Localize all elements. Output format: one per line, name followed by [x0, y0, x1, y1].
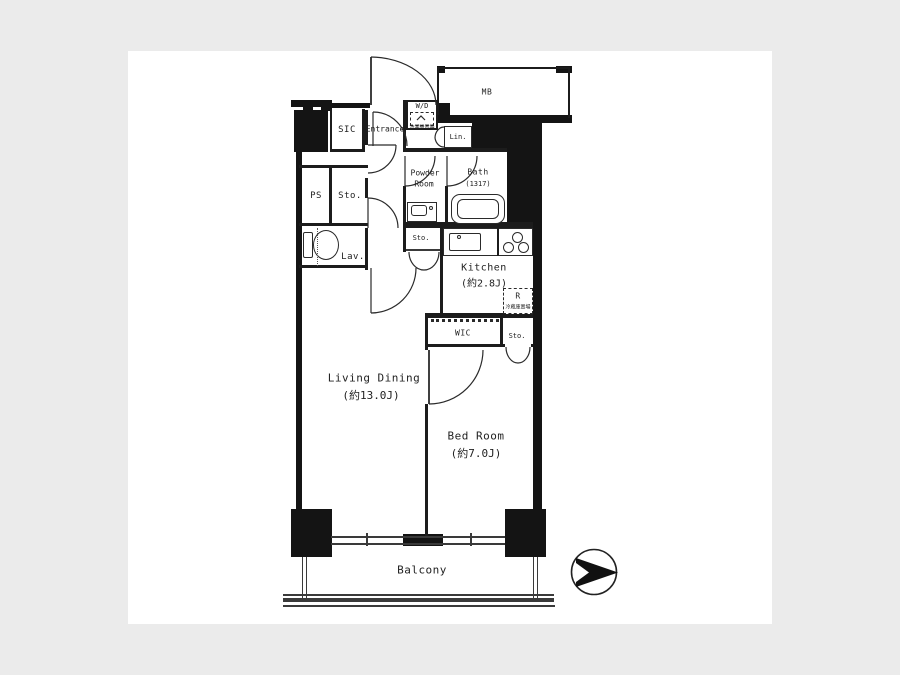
stove-burner-icon — [518, 242, 529, 253]
label-powder-room: Powder — [411, 169, 440, 178]
wall-ps-sto-divider — [329, 168, 332, 226]
column-bottom-left — [291, 509, 332, 557]
label-living-dining: Living Dining — [328, 372, 421, 385]
label-living-dining-size: (約13.0J) — [342, 387, 399, 403]
toilet-tank — [303, 232, 313, 258]
balcony-railing — [283, 594, 554, 596]
wall-right — [533, 123, 542, 509]
wall-wic-right — [500, 318, 503, 347]
label-washer-dryer-note: 洗濯機置場 — [409, 124, 434, 131]
label-storage: Sto. — [338, 191, 362, 201]
label-entrance: Entrance — [366, 125, 405, 134]
label-bed-room: Bed Room — [448, 430, 505, 443]
label-bath-size: (1317) — [465, 180, 490, 188]
label-mb: MB — [482, 88, 493, 97]
wall-mb-right — [568, 67, 570, 118]
window-tick — [470, 533, 472, 546]
label-refrigerator: R — [515, 292, 520, 301]
wall-segment — [531, 344, 533, 347]
wall-segment — [325, 103, 370, 108]
wall-lav-bottom — [299, 265, 368, 268]
label-hall-storage: Sto. — [413, 234, 430, 242]
wall-hall-left — [365, 178, 368, 198]
wall-segment — [299, 165, 368, 168]
label-linen: Lin. — [450, 133, 467, 141]
toilet-centerline — [317, 228, 318, 266]
balcony-railing — [283, 598, 554, 602]
balcony-railing — [283, 605, 555, 607]
label-lavatory: Lav. — [341, 252, 365, 262]
wall-mb-top — [437, 67, 570, 69]
column — [294, 110, 328, 152]
column-bottom-right — [505, 509, 546, 557]
wall-sic-bottom — [330, 149, 365, 152]
window-line — [331, 536, 505, 538]
wall-mass — [472, 123, 533, 151]
storage-front-line — [406, 249, 440, 251]
label-refrigerator-note: 冷蔵庫置場 — [505, 304, 530, 311]
window-tick — [366, 533, 368, 546]
window-line — [331, 543, 505, 545]
wall-ld-bed-divider — [425, 404, 428, 536]
wall-segment — [299, 223, 368, 226]
wall-mb-bottom — [441, 115, 572, 123]
faucet-dot — [429, 206, 433, 210]
label-ps: PS — [310, 191, 322, 201]
bathtub-inner — [457, 199, 499, 219]
wall-bath-left — [445, 186, 448, 224]
label-balcony: Balcony — [397, 564, 447, 577]
wall-mass — [507, 151, 533, 226]
counter-divider — [497, 228, 499, 256]
faucet-dot — [457, 235, 461, 239]
label-bed-room-size: (約7.0J) — [451, 445, 502, 461]
wall-segment — [438, 103, 450, 123]
label-wic: WIC — [455, 329, 471, 338]
stove-burner-icon — [503, 242, 514, 253]
label-kitchen-size: (約2.8J) — [461, 275, 507, 290]
wall-segment — [291, 100, 325, 107]
wall-sic-left — [330, 109, 332, 152]
wall-hall-left — [365, 228, 368, 270]
kitchen-sink-icon — [449, 233, 481, 251]
label-powder-room: Room — [414, 180, 433, 189]
label-sic: SIC — [338, 125, 356, 135]
wall-left — [296, 152, 302, 509]
wall-wic-bottom — [428, 344, 505, 347]
vanity-bowl — [411, 205, 427, 216]
label-washer-dryer: W/D — [416, 102, 429, 110]
label-bedroom-storage: Sto. — [509, 332, 526, 340]
label-bath: Bath — [467, 168, 488, 177]
hanger-rail-dots — [431, 319, 499, 322]
wall-segment — [403, 148, 507, 152]
label-kitchen: Kitchen — [461, 263, 507, 274]
